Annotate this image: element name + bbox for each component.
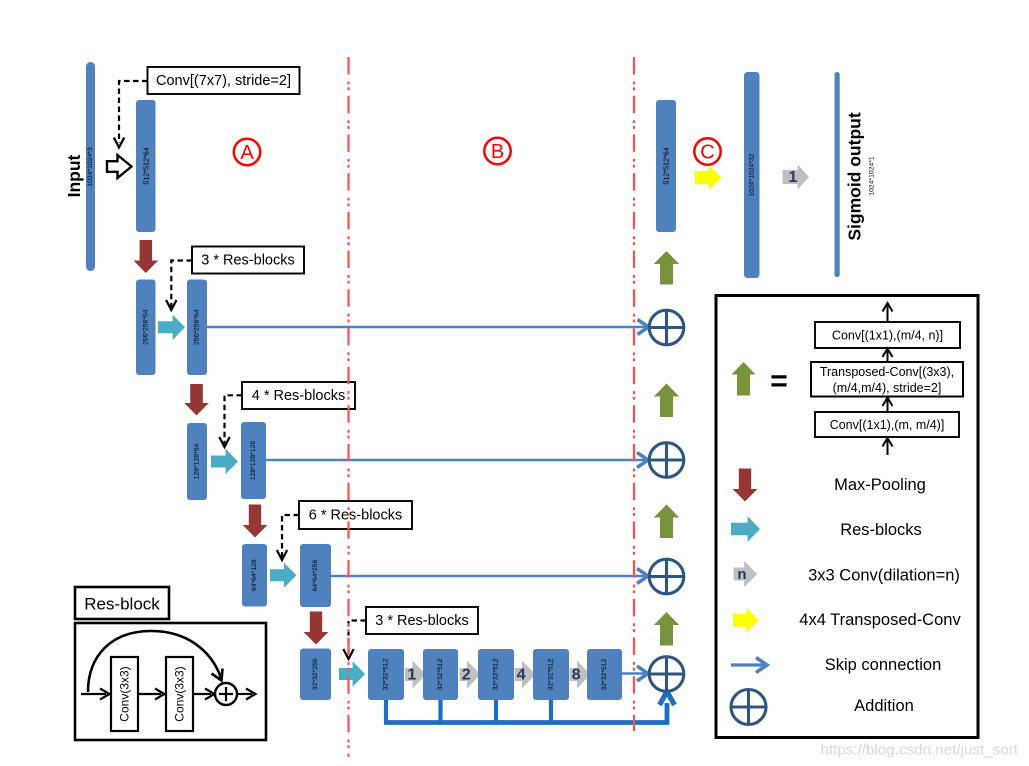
svg-text:Res-blocks: Res-blocks bbox=[840, 521, 922, 539]
svg-text:A: A bbox=[240, 142, 254, 164]
svg-text:32*32*512: 32*32*512 bbox=[437, 658, 444, 690]
svg-text:32*32*256: 32*32*256 bbox=[312, 658, 319, 690]
svg-text:Skip connection: Skip connection bbox=[825, 656, 942, 674]
svg-text:512*512*64: 512*512*64 bbox=[141, 147, 150, 185]
svg-text:3 * Res-blocks: 3 * Res-blocks bbox=[201, 253, 294, 269]
svg-text:512*512*64: 512*512*64 bbox=[662, 147, 671, 185]
svg-text:4: 4 bbox=[517, 667, 526, 684]
svg-text:32*32*512: 32*32*512 bbox=[601, 658, 608, 690]
svg-text:Conv[(1x1),(m, m/4)]: Conv[(1x1),(m, m/4)] bbox=[830, 418, 945, 432]
svg-text:(m/4,m/4), stride=2]: (m/4,m/4), stride=2] bbox=[833, 381, 942, 395]
svg-text:Conv[(1x1),(m/4, n)]: Conv[(1x1),(m/4, n)] bbox=[832, 329, 943, 343]
svg-text:128*128*64: 128*128*64 bbox=[194, 444, 201, 480]
svg-text:Transposed-Conv[(3x3),: Transposed-Conv[(3x3), bbox=[820, 365, 954, 379]
svg-text:B: B bbox=[491, 141, 504, 163]
svg-text:32*32*512: 32*32*512 bbox=[383, 658, 390, 690]
svg-text:Conv(3x3): Conv(3x3) bbox=[118, 666, 132, 721]
svg-text:256*256*64: 256*256*64 bbox=[194, 309, 201, 345]
svg-text:Input: Input bbox=[64, 154, 84, 197]
svg-text:Res-block: Res-block bbox=[84, 595, 160, 614]
svg-text:C: C bbox=[700, 142, 714, 164]
svg-text:Sigmoid output: Sigmoid output bbox=[845, 112, 865, 240]
svg-text:4 * Res-blocks: 4 * Res-blocks bbox=[252, 388, 345, 404]
svg-text:8: 8 bbox=[572, 667, 581, 684]
svg-text:n: n bbox=[737, 566, 746, 583]
svg-text:3 * Res-blocks: 3 * Res-blocks bbox=[375, 613, 468, 629]
svg-text:2: 2 bbox=[462, 667, 471, 684]
svg-text:32*32*512: 32*32*512 bbox=[548, 658, 555, 690]
svg-text:Addition: Addition bbox=[854, 697, 914, 715]
svg-text:32*32*512: 32*32*512 bbox=[493, 658, 500, 690]
svg-text:4x4 Transposed-Conv: 4x4 Transposed-Conv bbox=[799, 611, 961, 629]
svg-text:128*128*128: 128*128*128 bbox=[250, 441, 257, 481]
svg-text:256*256*64: 256*256*64 bbox=[142, 309, 149, 345]
svg-text:1024*1024*3: 1024*1024*3 bbox=[87, 147, 94, 187]
svg-text:1: 1 bbox=[407, 667, 416, 684]
svg-text:Conv(3x3): Conv(3x3) bbox=[173, 666, 187, 721]
svg-text:1: 1 bbox=[789, 169, 798, 186]
svg-text:Max-Pooling: Max-Pooling bbox=[834, 476, 926, 494]
svg-text:=: = bbox=[770, 365, 788, 398]
svg-text:64*64*256: 64*64*256 bbox=[312, 559, 319, 591]
svg-text:6 * Res-blocks: 6 * Res-blocks bbox=[309, 508, 402, 524]
svg-text:https://blog.csdn.net/just_sor: https://blog.csdn.net/just_sort bbox=[820, 742, 1018, 759]
svg-text:Conv[(7x7), stride=2]: Conv[(7x7), stride=2] bbox=[156, 73, 291, 89]
svg-text:1024*1024*1: 1024*1024*1 bbox=[869, 156, 876, 196]
svg-text:1024*1024*32: 1024*1024*32 bbox=[748, 153, 755, 196]
svg-text:3x3 Conv(dilation=n): 3x3 Conv(dilation=n) bbox=[808, 567, 960, 585]
svg-text:64*64*128: 64*64*128 bbox=[251, 559, 258, 591]
